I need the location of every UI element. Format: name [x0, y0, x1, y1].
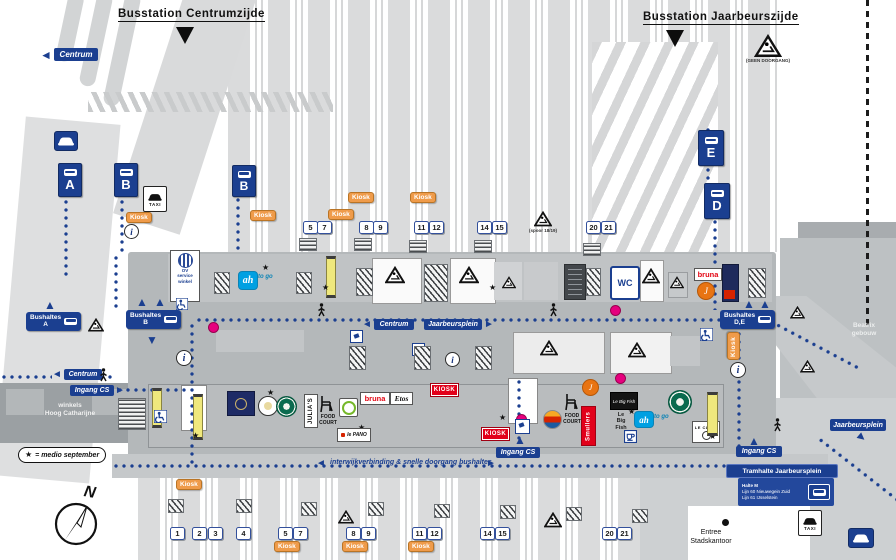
bus-stop-letter: B [121, 178, 130, 191]
shop-sign-red [724, 290, 735, 299]
ingang-cs-sign: Ingang CS [736, 446, 782, 457]
compass-n: N [83, 483, 98, 502]
construction-icon [544, 512, 562, 528]
chair-icon [563, 392, 579, 412]
stadskantoor-label: Entree Stadskantoor [666, 528, 756, 546]
escalator-icon [301, 502, 317, 516]
construction-icon [628, 342, 646, 358]
ah-to-go-logo: ah [634, 411, 654, 428]
kiss-and-ride-icon [848, 528, 874, 548]
kiosk-tag: Kiosk [176, 479, 202, 490]
hoog-catharijne-label: winkels Hoog Catharijne [10, 402, 130, 419]
escalator-icon [434, 504, 450, 518]
to-go-label: to go [258, 274, 273, 280]
ov-service-label: OV service winkel [177, 268, 193, 284]
kiosk-tag: Kiosk [328, 209, 354, 220]
ticket-gate-icon [515, 419, 530, 434]
bushaltes-b-label: Bushaltes B [130, 312, 161, 327]
pointer-triangle-icon [176, 27, 194, 44]
arrow-up-icon: ▲ [743, 298, 755, 310]
pointer-triangle-icon [666, 30, 684, 47]
tramhalte-banner: Tramhalte Jaarbeursplein [726, 464, 838, 478]
info-icon: i [124, 224, 139, 239]
platform-number-badge: 11 [414, 221, 429, 234]
station-map: Busstation Centrumzijde Busstation Jaarb… [0, 0, 896, 560]
platform-number-badge: 21 [601, 221, 616, 234]
arrow-left-icon: ◄ [316, 459, 326, 469]
kiosk-tag: Kiosk [408, 541, 434, 552]
platform-number-badge: 7 [317, 221, 332, 234]
taxi-stand-icon: TAXI [143, 186, 167, 212]
bus-stop-letter: E [707, 146, 716, 159]
construction-icon [534, 211, 552, 227]
construction-boundary-line [866, 0, 869, 330]
escalator-icon [349, 346, 366, 370]
route-dotted [120, 198, 124, 254]
coffee-machine-icon [624, 430, 637, 443]
bus-stop-letter: A [65, 178, 74, 191]
platform-number-badge: 15 [495, 527, 510, 540]
kiosk-shop: KIOSK [430, 383, 459, 397]
coffee-brand-logo [227, 391, 255, 416]
star-marker: ★ [499, 414, 506, 422]
concourse-structure [513, 332, 605, 374]
escalator-icon [566, 507, 582, 521]
bus-stop-letter: B [240, 180, 249, 192]
platform-number-badge: 7 [293, 527, 308, 540]
title-busstation-centrumzijde: Busstation Centrumzijde [118, 8, 265, 22]
platform-number-badge: 2 [192, 527, 207, 540]
ingang-cs-sign: Ingang CS [70, 385, 114, 396]
construction-icon [338, 510, 354, 524]
arrow-up-icon: ▲ [44, 299, 56, 311]
legend-box: ★= medio september [18, 447, 106, 463]
construction-icon [88, 318, 104, 332]
escalator-icon [414, 346, 431, 370]
info-icon: i [176, 350, 192, 366]
kiosk-tag: Kiosk [250, 210, 276, 221]
julias-logo: J [582, 379, 599, 396]
route-dotted [114, 254, 118, 308]
stairs-icon [409, 240, 427, 253]
ar_row-up-icon: ▲ [759, 298, 771, 310]
stairs-icon [474, 240, 492, 253]
star-marker: ★ [322, 284, 329, 292]
platform-number-badge: 9 [361, 527, 376, 540]
tram-line-61: Lijn 61 IJsselstein [742, 495, 790, 501]
wheelchair-lift-icon [154, 410, 167, 423]
food-court-label: FOOD COURT [314, 415, 342, 427]
platform-number-badge: 8 [346, 527, 361, 540]
green-brand-logo [339, 398, 358, 417]
bushaltes-de-sign: Bushaltes D,E [720, 310, 775, 329]
interwijk-label: interwijkverbinding & snelle doorgang bu… [330, 459, 492, 466]
route-dotted [64, 198, 68, 278]
meeting-point-icon [610, 305, 621, 316]
platform-number-badge: 21 [617, 527, 632, 540]
centrum-sign: Centrum [64, 369, 102, 380]
platform-number-badge: 5 [303, 221, 318, 234]
construction-icon [540, 340, 558, 356]
platform-number-badge: 20 [602, 527, 617, 540]
crosswalk-hatching [88, 92, 333, 112]
wc-sign: WC [610, 266, 640, 300]
arrow-up-icon: ▲ [154, 296, 166, 308]
julias-logo: J [697, 282, 715, 300]
le-pano-shop: le PANO [337, 428, 371, 442]
bus-icon [705, 137, 718, 144]
kiosk-tag: Kiosk [410, 192, 436, 203]
platform-number-badge: 12 [429, 221, 444, 234]
legend-text: = medio september [35, 452, 99, 459]
construction-icon [670, 276, 684, 289]
smullers-shop: Smullers [581, 406, 596, 446]
escalator-icon [296, 272, 312, 294]
taxi-stand-icon: TAXI [798, 510, 822, 536]
ov-service-winkel: OV service winkel [170, 250, 200, 302]
bus-icon [238, 171, 251, 178]
platform-number-badge: 4 [236, 527, 251, 540]
construction-icon [502, 276, 516, 289]
info-icon: i [445, 352, 460, 367]
arrow-right-icon: ► [115, 386, 125, 396]
bruna-shop: bruna [360, 392, 390, 405]
ah-to-go-logo: ah [238, 271, 258, 290]
platform-number-badge: 3 [208, 527, 223, 540]
star-marker: ★ [267, 389, 274, 397]
meeting-point-icon [615, 373, 626, 384]
pedestrian-icon [548, 303, 559, 318]
platform-number-badge: 14 [480, 527, 495, 540]
etos-shop: Etos [390, 392, 413, 405]
wheelchair-lift-icon [700, 328, 713, 341]
wheelchair-lift-icon [176, 298, 188, 310]
platform-number-badge: 12 [427, 527, 442, 540]
kiosk-tag: Kiosk [727, 332, 740, 360]
compass-icon: N [50, 480, 110, 550]
arrow-left-icon: ◄ [362, 320, 372, 330]
entrance-dot [722, 519, 729, 526]
construction-icon [800, 360, 815, 373]
bushaltes-a-sign: Bushaltes A [26, 312, 81, 331]
info-icon: i [730, 362, 746, 378]
departure-board [564, 264, 586, 300]
jaarbeursplein-sign: Jaarbeursplein [830, 419, 886, 431]
bus-stop-sign-b2: B [232, 165, 256, 197]
bushaltes-b-sign: Bushaltes B [126, 310, 181, 329]
platform-number-badge: 15 [492, 221, 507, 234]
centrum-sign: Centrum [54, 48, 98, 61]
to-go-label: to go [654, 414, 669, 420]
spoor-note: (spoor 18/19) [516, 228, 570, 233]
star-marker: ★ [489, 284, 496, 292]
ticket-gate-icon [350, 330, 363, 343]
escalator-icon [586, 268, 601, 296]
arrow-up-icon: ▲ [136, 296, 148, 308]
platform-number-badge: 9 [373, 221, 388, 234]
bus-stop-letter: D [712, 199, 721, 212]
platform-number-badge: 1 [170, 527, 185, 540]
escalator-icon [748, 268, 766, 298]
beatrix-gebouw-label: Beatrix gebouw [838, 322, 890, 339]
bus-icon [64, 169, 77, 176]
arrow-left-icon: ◄ [52, 370, 62, 380]
arrow-down-icon: ▼ [146, 334, 158, 346]
escalator-icon [236, 499, 252, 513]
starbucks-logo [668, 390, 692, 414]
construction-icon [754, 34, 782, 58]
bus-icon [164, 316, 177, 323]
concourse-structure [524, 262, 558, 300]
arrow-up-icon: ▲ [514, 434, 526, 446]
escalator-icon [424, 264, 448, 302]
stairs-icon [299, 238, 317, 251]
star-marker: ★ [25, 451, 32, 459]
title-busstation-jaarbeurszijde: Busstation Jaarbeurszijde [643, 11, 799, 25]
pedestrian-icon [772, 418, 783, 433]
bus-icon [711, 190, 724, 197]
meeting-point-icon [208, 322, 219, 333]
route-dotted [195, 318, 770, 322]
kiosk-tag: Kiosk [274, 541, 300, 552]
arrow-right-icon: ► [486, 459, 496, 469]
tram-info-box: Halte M Lijn 60 Nieuwegein Zuid Lijn 61 … [738, 478, 834, 506]
bus-icon [758, 316, 771, 323]
kiosk-tag: Kiosk [348, 192, 374, 203]
escalator-icon [500, 505, 516, 519]
concourse-structure [216, 330, 304, 352]
bus-icon [120, 169, 133, 176]
construction-icon [385, 266, 405, 284]
pedestrian-icon [316, 303, 327, 318]
kiosk-shop: KIOSK [481, 427, 510, 441]
escalator-icon [475, 346, 492, 370]
chair-icon [318, 394, 334, 414]
stairs-icon [354, 238, 372, 251]
kiss-and-ride-icon [54, 131, 78, 151]
escalator-icon [368, 502, 384, 516]
platform-number-badge: 8 [359, 221, 374, 234]
star-marker: ★ [192, 432, 199, 440]
bus-stop-sign-a: A [58, 163, 82, 197]
escalator-icon [356, 268, 373, 296]
bus-stop-sign-b: B [114, 163, 138, 197]
centrum-sign: Centrum [374, 319, 414, 330]
bus-stop-sign-e: E [698, 130, 724, 166]
starbucks-logo [276, 396, 297, 417]
construction-icon [642, 268, 660, 284]
platform-number-badge: 11 [412, 527, 427, 540]
bakery-logo [258, 396, 278, 416]
bushaltes-a-label: Bushaltes A [30, 314, 61, 329]
escalator-icon [632, 509, 648, 523]
bushaltes-de-label: Bushaltes D,E [724, 312, 755, 327]
construction-icon [459, 266, 479, 284]
geen-doorgang-note: (GEEN DOORGANG) [730, 58, 806, 63]
tram-icon [808, 484, 830, 500]
platform-number-badge: 14 [477, 221, 492, 234]
ov-logo-icon [178, 253, 193, 268]
route-dotted [0, 375, 52, 379]
escalator-icon [214, 272, 230, 294]
route-dotted [236, 196, 240, 252]
star-marker: ★ [262, 264, 269, 272]
train-tracks-south [138, 478, 666, 560]
bus-icon [64, 318, 77, 325]
construction-icon [790, 306, 805, 319]
elevator-strip [707, 392, 718, 436]
concourse-structure [670, 336, 700, 366]
stairs-icon [583, 243, 601, 256]
bus-stop-sign-d: D [704, 183, 730, 219]
platform-number-badge: 20 [586, 221, 601, 234]
platform-number-badge: 5 [278, 527, 293, 540]
kiosk-tag: Kiosk [126, 212, 152, 223]
ingang-cs-sign: Ingang CS [496, 447, 540, 458]
arrow-left-icon: ◄ [40, 49, 52, 61]
pedestrian-icon [98, 368, 109, 383]
escalator-icon [168, 499, 184, 513]
arrow-right-icon: ► [484, 320, 494, 330]
jaarbeursplein-sign: Jaarbeursplein [424, 319, 482, 330]
kiosk-tag: Kiosk [342, 541, 368, 552]
bruna-shop: bruna [694, 268, 722, 281]
